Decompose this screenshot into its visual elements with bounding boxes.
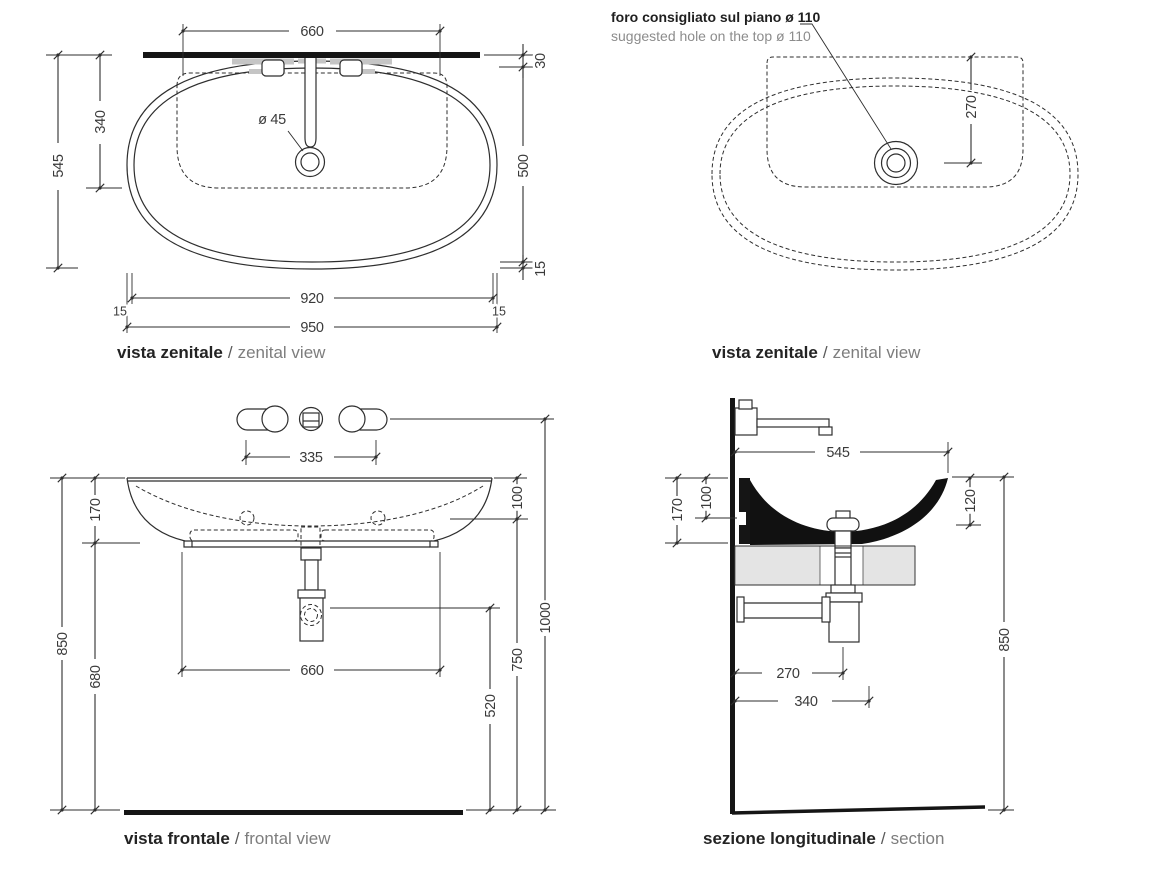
dim-bowl-depth: 500 [516,154,532,178]
dim-rim-to-hole: 100 [699,486,715,510]
wall-tap-nozzle [819,427,832,435]
drain-stem [835,531,851,548]
trap-collar [826,593,862,602]
dim-front-lip: 15 [533,261,549,277]
title-separator: / [223,343,238,362]
dim-left-lip: 15 [113,304,127,318]
section-view: 545 170 100 [665,398,1014,814]
drain-hole-inner [301,153,319,171]
tap-handle-left [262,60,284,76]
outlet-trap-flange [822,597,830,622]
dim-right-lip: 15 [492,304,506,318]
title-english: frontal view [245,829,331,848]
note-english: suggested hole on the top ø 110 [611,28,811,44]
dim-overall-depth: 545 [826,445,850,461]
drain-hole-outer [296,148,325,177]
wall-tap-knob [739,400,752,409]
title-separator: / [230,829,245,848]
base-pad-right [321,530,434,541]
wall-shelf-bar [143,52,480,58]
title-section: sezione longitudinale/section [703,829,944,849]
dim-holes-height: 750 [510,648,526,672]
note-italian: foro consigliato sul piano ø 110 [611,9,820,25]
counter-right [863,546,915,585]
trap-collar [298,590,325,598]
dim-drain-diameter: ø 45 [258,112,286,128]
tap-spout-face [303,413,319,427]
floor-line [124,810,463,815]
tap-handle-right-knob [339,406,365,432]
zenital-view-left: ø 45 660 545 340 30 500 1 [46,24,549,336]
basin-right-profile [434,478,492,541]
title-english: zenital view [238,343,326,362]
dim-trap-from-wall: 270 [776,666,800,682]
inner-rim-hidden [136,486,483,526]
wall-line [730,398,735,814]
basin-left-profile [127,478,185,541]
title-italian: vista frontale [124,829,230,848]
trap-body [829,602,859,642]
title-english: section [891,829,945,848]
wall-tap-spout [757,419,829,427]
dim-back-to-basin: 340 [93,110,109,134]
title-italian: sezione longitudinale [703,829,876,848]
outlet-wall-flange [737,597,744,622]
mounting-hole-right [371,511,385,525]
wall-tap-plate [735,408,757,435]
drain-leader-line [288,131,303,151]
base-pad-left [190,530,298,541]
dim-inner-width: 920 [300,291,324,307]
title-zenital-left: vista zenitale/zenital view [117,343,325,363]
dim-tap-height: 1000 [538,602,554,633]
title-frontal: vista frontale/frontal view [124,829,331,849]
hidden-inner-rim [720,86,1070,262]
mounting-hole-left [240,511,254,525]
zenital-view-right: 270 [712,24,1078,270]
drain-nut [831,585,855,593]
suggested-hole-inner [887,154,905,172]
title-italian: vista zenitale [117,343,223,362]
dim-shelf-width: 660 [300,24,324,40]
dim-trap-height: 520 [483,694,499,718]
dim-tap-centres: 335 [299,450,323,466]
title-separator: / [818,343,833,362]
dim-rim-to-holes: 100 [510,486,526,510]
floor-line [732,807,985,813]
bracket-fixing-hole [739,512,746,525]
dim-back-offset: 30 [533,53,549,69]
dim-basin-height: 170 [670,498,686,522]
drain-hidden-box [301,527,320,547]
counter-cutout [767,57,1023,187]
title-english: zenital view [833,343,921,362]
title-zenital-right: vista zenitale/zenital view [712,343,920,363]
dim-rim-height: 850 [997,628,1013,652]
tap-handle-left-knob [262,406,288,432]
dim-overall-depth: 545 [51,154,67,178]
drawing-canvas: ø 45 660 545 340 30 500 1 [0,0,1166,878]
basin-feet [184,541,438,547]
drain-flange [301,548,321,560]
dim-outlet-from-wall: 340 [794,694,818,710]
popup-cap [827,518,859,531]
drain-tailpipe [305,560,318,590]
suggested-hole-mid [882,149,911,178]
dim-basin-height: 170 [88,498,104,522]
dim-inner-depth: 120 [963,489,979,513]
dim-overall-width: 950 [300,320,324,336]
frontal-view: 335 850 170 [50,406,556,815]
tap-handle-right [340,60,362,76]
title-separator: / [876,829,891,848]
dim-rim-height: 850 [55,632,71,656]
dim-base-width: 660 [300,663,324,679]
technical-drawing-sheet: ø 45 660 545 340 30 500 1 [0,0,1166,878]
dim-drain-from-back: 270 [964,95,980,119]
dim-clearance-height: 680 [88,665,104,689]
wall-bracket-cut [739,478,750,544]
counter-left [735,546,820,585]
tap-spout [305,58,316,147]
title-italian: vista zenitale [712,343,818,362]
